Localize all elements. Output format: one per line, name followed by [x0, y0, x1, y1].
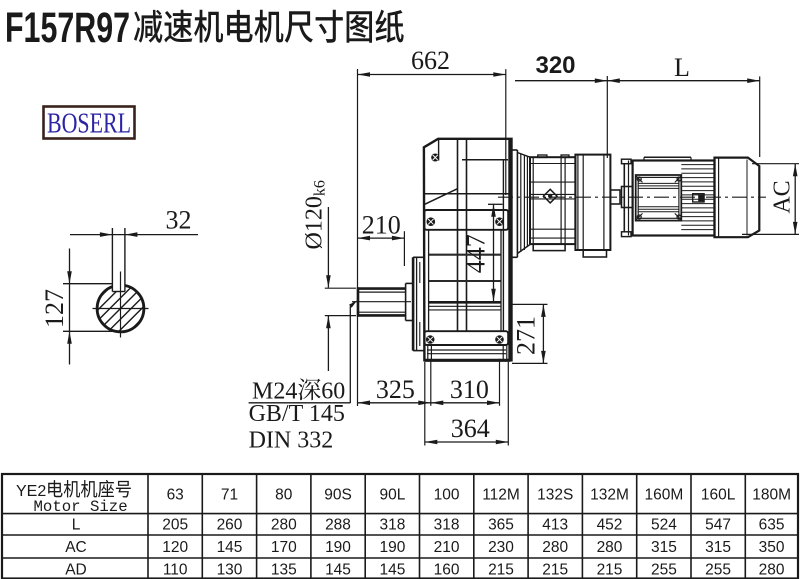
- svg-text:288: 288: [325, 517, 351, 534]
- svg-text:170: 170: [271, 539, 297, 556]
- svg-text:260: 260: [217, 517, 243, 534]
- svg-text:524: 524: [651, 517, 677, 534]
- svg-text:160L: 160L: [701, 487, 736, 504]
- svg-text:AC: AC: [770, 180, 796, 213]
- svg-text:145: 145: [217, 539, 243, 556]
- svg-text:210: 210: [362, 211, 401, 240]
- svg-text:413: 413: [542, 517, 568, 534]
- svg-text:205: 205: [162, 517, 188, 534]
- svg-text:120: 120: [162, 539, 188, 556]
- svg-text:AD: AD: [65, 562, 87, 579]
- svg-text:145: 145: [325, 562, 351, 579]
- svg-text:130: 130: [217, 562, 243, 579]
- svg-text:255: 255: [705, 562, 731, 579]
- svg-text:350: 350: [759, 539, 785, 556]
- svg-text:315: 315: [705, 539, 731, 556]
- svg-text:547: 547: [705, 517, 731, 534]
- svg-text:190: 190: [325, 539, 351, 556]
- svg-text:215: 215: [488, 562, 514, 579]
- svg-text:BOSERL: BOSERL: [47, 108, 131, 140]
- svg-text:180M: 180M: [752, 487, 791, 504]
- svg-text:315: 315: [651, 539, 677, 556]
- svg-text:635: 635: [759, 517, 785, 534]
- svg-text:280: 280: [597, 539, 623, 556]
- svg-text:63: 63: [167, 487, 184, 504]
- svg-text:Motor Size: Motor Size: [34, 498, 128, 516]
- svg-text:90L: 90L: [379, 487, 405, 504]
- svg-text:160M: 160M: [645, 487, 684, 504]
- svg-text:210: 210: [434, 539, 460, 556]
- svg-text:215: 215: [542, 562, 568, 579]
- svg-text:215: 215: [597, 562, 623, 579]
- svg-text:365: 365: [488, 517, 514, 534]
- svg-text:80: 80: [275, 487, 293, 504]
- svg-text:280: 280: [271, 517, 297, 534]
- svg-text:71: 71: [221, 487, 238, 504]
- svg-text:L: L: [674, 53, 690, 82]
- svg-text:132S: 132S: [537, 487, 573, 504]
- svg-text:280: 280: [542, 539, 568, 556]
- svg-text:662: 662: [411, 46, 450, 75]
- svg-text:447: 447: [462, 234, 491, 273]
- svg-text:DIN 332: DIN 332: [249, 427, 334, 453]
- svg-text:110: 110: [163, 562, 188, 579]
- svg-text:145: 145: [379, 562, 405, 579]
- svg-text:320: 320: [535, 52, 575, 79]
- svg-text:325: 325: [376, 375, 415, 404]
- svg-text:F157R97: F157R97: [5, 4, 130, 52]
- svg-text:L: L: [72, 517, 81, 534]
- svg-text:GB/T 145: GB/T 145: [249, 401, 345, 427]
- svg-text:364: 364: [451, 414, 490, 443]
- svg-text:271: 271: [512, 316, 541, 355]
- svg-text:318: 318: [379, 517, 405, 534]
- svg-text:310: 310: [450, 375, 489, 404]
- svg-text:135: 135: [271, 562, 297, 579]
- svg-text:32: 32: [166, 206, 192, 235]
- svg-text:132M: 132M: [590, 487, 629, 504]
- svg-text:190: 190: [379, 539, 405, 556]
- svg-text:280: 280: [759, 562, 785, 579]
- svg-text:318: 318: [434, 517, 460, 534]
- svg-text:112M: 112M: [482, 487, 520, 504]
- svg-text:230: 230: [488, 539, 514, 556]
- svg-text:160: 160: [434, 562, 460, 579]
- svg-text:100: 100: [434, 487, 460, 504]
- svg-text:255: 255: [651, 562, 677, 579]
- svg-text:AC: AC: [65, 539, 87, 556]
- svg-text:127: 127: [40, 289, 69, 328]
- svg-text:90S: 90S: [324, 487, 352, 504]
- svg-text:452: 452: [597, 517, 623, 534]
